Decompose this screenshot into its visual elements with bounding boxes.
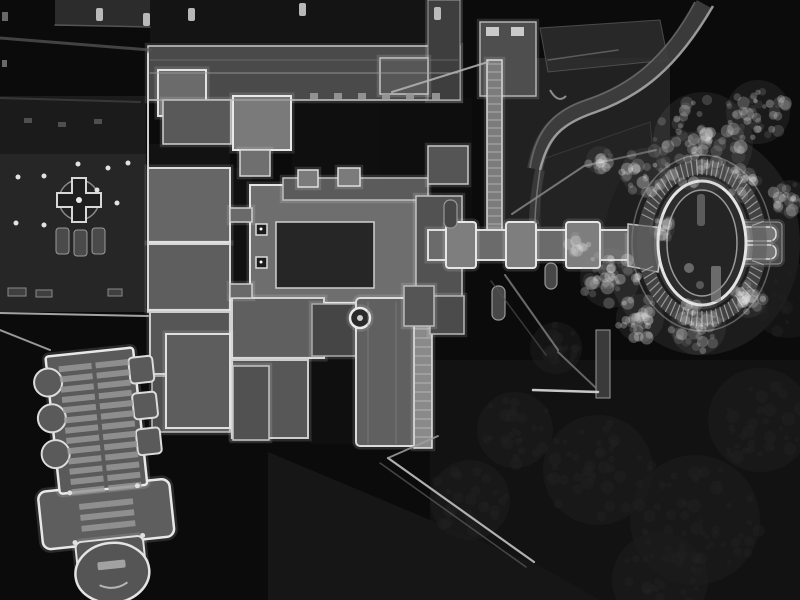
tree-puff (704, 162, 711, 169)
garden-tree-dot (115, 201, 120, 206)
tree-puff (773, 280, 778, 285)
tree-puff (773, 203, 783, 213)
tree-puff (747, 440, 755, 448)
tree-puff (739, 432, 747, 440)
tree-puff (763, 404, 776, 417)
church-chapel-right-a (128, 356, 155, 384)
tree-puff (687, 499, 701, 513)
ne-block (428, 146, 468, 184)
tree-puff (747, 119, 752, 124)
tree-puff (755, 126, 762, 133)
tree-puff (680, 511, 689, 520)
annex-south (233, 366, 269, 440)
tree-puff (658, 117, 666, 125)
tree-puff (649, 554, 654, 559)
tree-puff (554, 438, 561, 445)
garden-bed-b (74, 230, 87, 256)
tree-puff (692, 146, 703, 157)
tree-puff (729, 285, 741, 297)
tree-puff (734, 168, 739, 173)
tree-puff (606, 420, 613, 427)
tree-puff (608, 456, 615, 463)
tree-puff (674, 335, 684, 345)
tree-puff (594, 153, 608, 167)
upper-garden (0, 96, 146, 154)
tree-puff (603, 297, 614, 308)
tree-puff (731, 450, 744, 463)
tree-puff (748, 387, 753, 392)
tree-puff (771, 446, 776, 451)
tree-puff (617, 261, 623, 267)
tree-puff (661, 555, 667, 561)
tree-puff (655, 218, 660, 223)
tree-puff (784, 435, 789, 440)
tree-puff (601, 279, 609, 287)
tree-puff (779, 194, 787, 202)
tree-puff (584, 160, 592, 168)
small-roof-b (163, 100, 231, 144)
tree-puff (733, 547, 742, 556)
tree-puff (672, 117, 685, 130)
tree-puff (677, 498, 687, 508)
tree-puff (579, 429, 584, 434)
point-cloud-scene (0, 0, 800, 600)
tree-puff (548, 472, 561, 485)
tree-puff (532, 449, 541, 458)
tree-puff (743, 308, 750, 315)
tree-puff (442, 517, 452, 527)
tree-puff (572, 454, 579, 461)
edge-speck (2, 60, 7, 67)
tree-puff (734, 443, 740, 449)
tree-puff (681, 298, 693, 310)
tree-puff (747, 495, 754, 502)
tree-puff (490, 510, 500, 520)
tree-puff (624, 577, 633, 586)
tree-puff (786, 204, 799, 217)
tree-puff (677, 130, 688, 141)
tree-puff (658, 481, 666, 489)
tree-puff (658, 167, 663, 172)
tree-puff (667, 482, 672, 487)
tree-puff (685, 140, 692, 147)
wall-block-se (596, 330, 610, 398)
garden-tree-dot (106, 166, 111, 171)
garden-bench (8, 288, 26, 296)
tree-puff (554, 500, 563, 509)
church-annex (166, 334, 230, 428)
tree-puff (633, 499, 645, 511)
tree-puff (654, 225, 659, 230)
tree-puff (601, 480, 614, 493)
tree-puff (750, 134, 755, 139)
tree-puff (734, 93, 741, 100)
tree-puff (697, 310, 703, 316)
tree-puff (782, 306, 788, 312)
tree-puff (606, 264, 615, 273)
tree-puff (727, 103, 733, 109)
gallery-tower-b (338, 168, 360, 186)
bastion-blob-b (696, 281, 704, 289)
tree-puff (741, 174, 746, 179)
tree-puff (750, 92, 757, 99)
dormer-speck (434, 7, 441, 20)
tree-puff (482, 435, 491, 444)
tree-puff (738, 180, 742, 184)
tree-puff (730, 141, 742, 153)
tree-puff (759, 88, 766, 95)
tree-puff (778, 96, 792, 110)
bridge-pier-a (446, 222, 476, 268)
top-wing (428, 0, 460, 100)
tree-puff (628, 183, 633, 188)
tree-puff (728, 188, 736, 196)
tree-puff (573, 251, 578, 256)
tree-puff (573, 473, 582, 482)
bridge-pier-b (506, 222, 536, 268)
roof-light (486, 27, 499, 36)
garden-tree-dot (14, 221, 19, 226)
tree-puff (628, 162, 641, 175)
bastion-stair-top (697, 194, 705, 226)
tree-puff (706, 137, 713, 144)
tree-puff (726, 503, 731, 508)
tree-puff (604, 501, 615, 512)
roof-chimney (382, 93, 390, 100)
dormer-speck (96, 8, 103, 21)
tree-puff (728, 424, 735, 431)
tree-puff (699, 347, 706, 354)
tree-puff (643, 294, 653, 304)
tree-puff (690, 565, 696, 571)
tree-puff (702, 95, 712, 105)
tree-puff (778, 294, 783, 299)
roof-chimney (432, 93, 440, 100)
tree-puff (551, 321, 558, 328)
tree-puff (620, 503, 630, 513)
tree-puff (726, 410, 739, 423)
tree-puff (760, 296, 767, 303)
tree-puff (514, 437, 522, 445)
tree-puff (795, 438, 799, 442)
tree-puff (627, 150, 637, 160)
tree-puff (641, 584, 651, 594)
tree-puff (782, 416, 786, 420)
tree-puff (645, 539, 652, 546)
tree-puff (531, 425, 537, 431)
tree-puff (722, 317, 727, 322)
tree-puff (591, 257, 595, 261)
below-bridge-block (404, 286, 434, 326)
tree-puff (488, 403, 493, 408)
tree-puff (596, 447, 607, 458)
cart-c (545, 263, 557, 289)
tree-puff (786, 270, 792, 276)
tree-puff (666, 510, 676, 520)
tree-puff (692, 475, 699, 482)
tree-puff (773, 112, 782, 121)
scan-viewport (0, 0, 800, 600)
tree-puff (472, 467, 481, 476)
tree-puff (641, 187, 652, 198)
tree-puff (681, 530, 687, 536)
garden-bench (36, 290, 52, 297)
garden-tree-dot (42, 174, 47, 179)
tree-puff (608, 434, 621, 447)
tree-puff (739, 124, 745, 130)
tree-puff (634, 312, 645, 323)
tree-puff (645, 331, 652, 338)
tree-puff (632, 555, 639, 562)
tree-puff (597, 511, 607, 521)
dormer-speck (143, 13, 150, 26)
tree-puff (510, 398, 519, 407)
tree-puff (570, 331, 575, 336)
tree-puff (768, 126, 775, 133)
gallery-tower-a (298, 170, 318, 187)
plant-speck (58, 122, 66, 127)
tree-puff (432, 477, 441, 486)
garden-bed-c (92, 228, 105, 254)
tree-puff (662, 217, 675, 230)
tree-puff (465, 493, 477, 505)
tree-puff (589, 290, 596, 297)
connector-a (230, 208, 252, 222)
tree-puff (544, 408, 549, 413)
tree-puff (644, 175, 649, 180)
tree-puff (588, 475, 596, 483)
tree-puff (654, 183, 661, 190)
tree-puff (674, 153, 685, 164)
dormer-speck (299, 3, 306, 16)
south-alley (310, 358, 354, 444)
tree-puff (657, 581, 665, 589)
tree-puff (731, 538, 741, 548)
tree-puff (621, 297, 634, 310)
edge-speck (2, 12, 8, 21)
stair-tower-core (357, 315, 363, 321)
tree-puff (745, 289, 758, 302)
tree-puff (554, 355, 558, 359)
tree-puff (721, 542, 726, 547)
tree-puff (771, 291, 777, 297)
plant-speck (24, 118, 32, 123)
tree-puff (753, 99, 758, 104)
west-range-a (148, 168, 230, 242)
tree-puff (711, 168, 719, 176)
tree-puff (704, 534, 710, 540)
tree-puff (680, 97, 693, 110)
tree-puff (615, 274, 626, 285)
tree-puff (695, 553, 707, 565)
lightwell-dot (260, 261, 263, 264)
tree-puff (596, 440, 603, 447)
roof-chimney (358, 93, 366, 100)
tree-puff (482, 474, 492, 484)
tree-puff (453, 492, 464, 503)
tree-puff (647, 466, 653, 472)
garden-bench (108, 289, 122, 296)
tree-puff (749, 174, 757, 182)
roof-light (511, 27, 524, 36)
tree-puff (718, 467, 723, 472)
t-stem (240, 150, 270, 176)
tree-puff (642, 556, 649, 563)
tree-puff (592, 268, 597, 273)
tree-puff (710, 481, 724, 495)
garden-tree-dot (126, 161, 131, 166)
roof-chimney (310, 93, 318, 100)
tree-puff (517, 413, 527, 423)
tree-puff (748, 418, 759, 429)
tree-puff (737, 187, 746, 196)
tree-puff (792, 182, 797, 187)
tree-puff (518, 447, 526, 455)
tree-puff (698, 519, 703, 524)
tree-puff (668, 326, 675, 333)
cloister-garth (276, 222, 374, 288)
tree-puff (681, 589, 687, 595)
tree-puff (618, 169, 625, 176)
tree-puff (747, 520, 753, 526)
fountain-center (76, 197, 82, 203)
tree-puff (500, 435, 510, 445)
tree-puff (738, 532, 744, 538)
tree-puff (549, 453, 562, 466)
tree-puff (505, 418, 509, 422)
tree-puff (643, 510, 655, 522)
tree-puff (755, 390, 768, 403)
tree-puff (584, 277, 598, 291)
bastion-stair-bottom (711, 266, 721, 302)
tree-puff (676, 549, 688, 561)
tree-puff (570, 344, 578, 352)
tree-puff (691, 316, 702, 327)
plant-speck (94, 119, 102, 124)
tree-puff (678, 177, 688, 187)
t-block (233, 96, 291, 150)
tree-puff (653, 503, 661, 511)
tree-puff (691, 183, 696, 188)
cart-a (444, 200, 457, 228)
tree-puff (567, 451, 573, 457)
tree-puff (503, 494, 508, 499)
east-wall-upper (487, 60, 502, 230)
tree-puff (562, 439, 567, 444)
tree-puff (778, 389, 788, 399)
connector-b (230, 284, 252, 298)
tree-puff (501, 397, 509, 405)
tree-puff (742, 447, 749, 454)
tree-puff (693, 586, 698, 591)
tree-puff (707, 338, 718, 349)
tree-puff (771, 306, 775, 310)
tree-puff (614, 471, 626, 483)
tree-puff (705, 544, 711, 550)
tree-puff (508, 431, 515, 438)
tree-puff (635, 272, 643, 280)
tree-puff (569, 356, 574, 361)
tree-puff (732, 111, 738, 117)
tree-puff (453, 470, 463, 480)
tree-puff (744, 549, 753, 558)
tree-puff (606, 464, 615, 473)
tree-puff (718, 137, 726, 145)
tree-puff (493, 490, 499, 496)
tree-puff (671, 473, 678, 480)
garden-tree-dot (95, 188, 100, 193)
church-chapel-right-c (136, 427, 163, 455)
range-gap (148, 144, 230, 168)
tree-puff (538, 426, 544, 432)
tree-puff (711, 526, 720, 535)
tree-puff (594, 252, 601, 259)
tree-puff (690, 577, 697, 584)
tree-puff (650, 584, 657, 591)
tree-puff (744, 536, 754, 546)
tree-puff (645, 323, 651, 329)
roof-chimney (334, 93, 342, 100)
bastion-blob-a (684, 263, 694, 273)
tree-puff (622, 316, 631, 325)
tree-puff (697, 111, 703, 117)
tree-puff (478, 501, 489, 512)
tree-puff (446, 489, 452, 495)
tree-puff (510, 458, 522, 470)
tree-puff (663, 236, 668, 241)
tree-puff (771, 325, 783, 337)
tree-puff (691, 310, 697, 316)
lightwell-dot (260, 228, 263, 231)
tree-puff (757, 451, 763, 457)
garden-tree-dot (76, 162, 81, 167)
tree-puff (739, 107, 748, 116)
tree-puff (563, 239, 574, 250)
tree-puff (764, 431, 776, 443)
tree-puff (636, 455, 642, 461)
tree-puff (783, 443, 796, 456)
garden-tree-dot (42, 223, 47, 228)
tree-puff (653, 137, 658, 142)
tree-puff (576, 244, 582, 250)
church-chapel-right-b (132, 391, 159, 419)
roof-chimney (406, 93, 414, 100)
tree-puff (624, 558, 629, 563)
tree-puff (584, 460, 595, 471)
tree-puff (623, 267, 632, 276)
tree-puff (785, 320, 789, 324)
tree-puff (679, 543, 686, 550)
tree-puff (778, 426, 783, 431)
tree-puff (762, 418, 769, 425)
garden-bed-a (56, 228, 69, 254)
west-range-b (148, 244, 230, 310)
dormer-speck (188, 8, 195, 21)
tree-puff (753, 524, 765, 536)
tree-puff (718, 159, 722, 163)
garden-tree-dot (16, 175, 21, 180)
tree-puff (727, 560, 731, 564)
